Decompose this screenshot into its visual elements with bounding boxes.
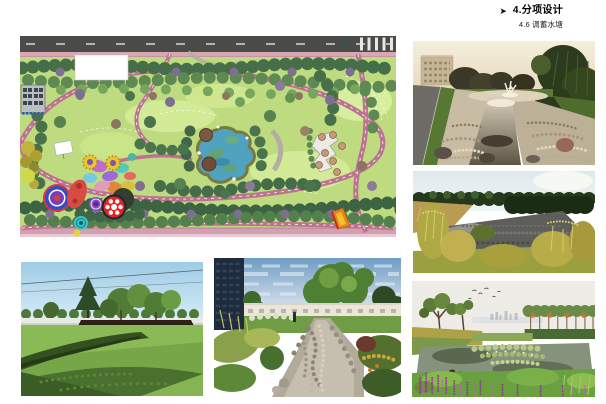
section-header: ➤ 4.分项设计 4.6 调蓄水塘 [499, 5, 563, 30]
arrow-bullet-icon: ➤ [499, 7, 507, 16]
plan-building [21, 85, 45, 115]
mushroom-graphic [102, 195, 127, 220]
section-subtitle: 4.6 调蓄水塘 [499, 19, 563, 30]
plan-label-box [75, 55, 128, 80]
slide-page: ➤ 4.分项设计 4.6 调蓄水塘 [0, 0, 606, 404]
photo-bioswale [21, 262, 203, 396]
plan-pond [197, 126, 254, 183]
section-title: 4.分项设计 [513, 5, 563, 17]
masterplan-image [20, 36, 396, 237]
photo-dry-creek [214, 258, 401, 397]
photo-stream-dusk [413, 41, 595, 165]
photo-wetland-rendering [412, 281, 595, 397]
photo-gravel-basin [413, 171, 595, 273]
masterplan-drawing [20, 36, 396, 237]
